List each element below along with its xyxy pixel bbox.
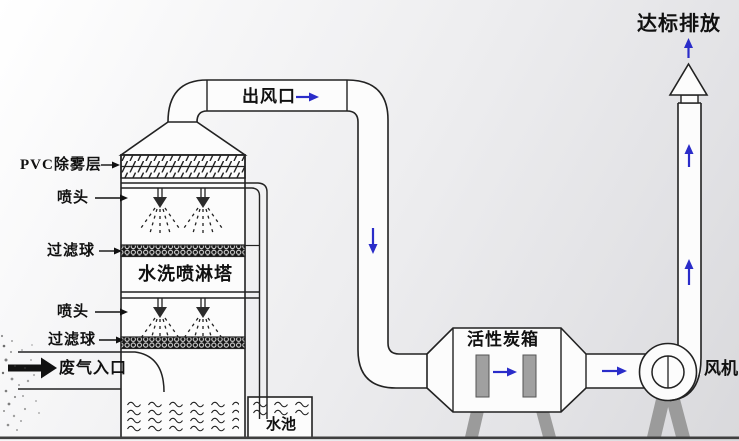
label-water-pool: 水池	[266, 418, 296, 433]
leader-pvc-demister	[101, 162, 120, 169]
filter-ball-band-upper	[121, 245, 245, 257]
circulation-pipe	[260, 192, 268, 419]
carbon-filter-plate	[523, 355, 536, 397]
label-fan: 风机	[704, 360, 738, 377]
label-spray-nozzle-upper: 喷头	[57, 191, 89, 206]
fan-impeller	[652, 356, 684, 388]
label-filter-ball-lower: 过滤球	[48, 333, 96, 348]
label-activated-carbon-box: 活性炭箱	[467, 331, 539, 348]
smoke-speckles	[1, 335, 40, 431]
label-compliant-emission: 达标排放	[637, 14, 721, 34]
label-spray-nozzle-lower: 喷头	[57, 305, 89, 320]
fan-legs	[647, 399, 690, 437]
label-spray-tower-name: 水洗喷淋塔	[138, 265, 233, 283]
carbon-filter-plate	[476, 355, 489, 397]
waste-gas-arrow	[8, 358, 57, 379]
label-pvc-demister-layer: PVC除雾层	[20, 158, 102, 173]
tower-sump-water	[127, 401, 239, 432]
flow-arrow-emission-up	[684, 38, 693, 58]
label-waste-gas-inlet: 废气入口	[59, 361, 127, 377]
carbon-box-legs	[465, 411, 556, 437]
label-air-outlet: 出风口	[242, 88, 296, 105]
leader-filter-upper	[99, 248, 122, 255]
exhaust-stack	[678, 103, 701, 375]
filter-ball-band-lower	[121, 337, 245, 349]
pvc-demister-band	[121, 155, 245, 178]
process-flow-diagram: PVC除雾层 喷头 过滤球 水洗喷淋塔 喷头 过滤球 废气入口 水池 出风口 达…	[0, 0, 739, 441]
stack-neck	[681, 95, 698, 103]
stack-cone	[670, 64, 707, 95]
label-filter-ball-upper: 过滤球	[47, 244, 95, 259]
tower-hood	[121, 122, 245, 155]
